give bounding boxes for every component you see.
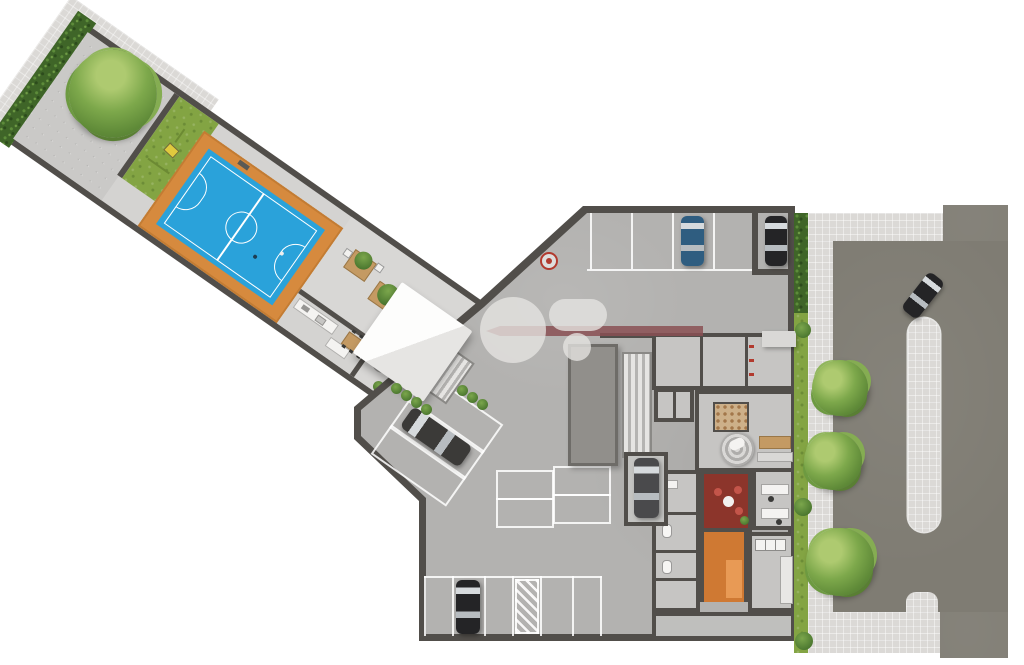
parking-divider xyxy=(484,576,486,636)
mail-room-floor xyxy=(713,402,749,432)
street-tree xyxy=(806,528,874,596)
office-room xyxy=(752,468,795,530)
parked-car-black xyxy=(765,216,787,266)
elevator-bank xyxy=(654,388,694,422)
parking-divider xyxy=(713,213,715,269)
street-bush xyxy=(794,498,812,516)
parking-divider xyxy=(540,576,542,636)
parking-divider xyxy=(590,213,592,269)
lounge-chair xyxy=(735,507,743,515)
ramp-slab xyxy=(568,344,618,466)
stairwell xyxy=(622,352,652,458)
office-chair xyxy=(768,496,774,502)
stair-shrub xyxy=(467,392,478,403)
floor-marker-dot xyxy=(546,258,552,264)
elevator-divider xyxy=(673,392,676,418)
stair-shrub xyxy=(401,390,412,401)
no-parking-hatch xyxy=(515,579,539,634)
parking-divider xyxy=(631,213,633,269)
stair-shrub xyxy=(411,397,422,408)
street-bush xyxy=(795,322,811,338)
lounge-room xyxy=(700,470,752,532)
driveway-top-right xyxy=(943,205,1008,241)
reception-desk xyxy=(759,436,791,449)
room-partition xyxy=(700,337,703,386)
alcove-wall-left xyxy=(752,213,758,275)
lounge-chair xyxy=(714,488,722,496)
room-partition xyxy=(745,337,748,386)
middle-spot xyxy=(496,498,554,528)
street-tree xyxy=(804,432,862,490)
parked-car-bottom xyxy=(456,580,480,634)
parking-divider xyxy=(424,576,426,636)
sidewalk-top xyxy=(808,213,943,241)
middle-spot xyxy=(553,466,611,496)
lobby-sculpture xyxy=(728,436,747,452)
stair-shrub xyxy=(457,385,468,396)
office-chair xyxy=(776,519,782,525)
lounge-plant xyxy=(740,516,749,525)
cooktop xyxy=(301,304,310,313)
driveway-bottom-right xyxy=(940,612,1008,658)
parking-divider xyxy=(572,576,574,636)
office-desk xyxy=(761,484,789,495)
stair-shrub xyxy=(421,404,432,415)
entry-canopy-roof xyxy=(762,331,796,347)
median-island xyxy=(908,318,940,532)
shaft-marker-red xyxy=(749,373,754,376)
middle-spot xyxy=(496,470,554,500)
office-desk xyxy=(761,508,789,519)
parked-car-blue xyxy=(681,216,704,266)
shaft-marker-red xyxy=(749,359,754,362)
laundry-room xyxy=(748,532,795,612)
stool-row xyxy=(757,452,793,462)
parked-car-boxed xyxy=(634,458,659,518)
hedge-strip xyxy=(794,213,808,313)
parking-divider xyxy=(512,576,514,636)
middle-spot xyxy=(553,494,611,524)
stair-shrub xyxy=(391,383,402,394)
alcove-wall-bottom xyxy=(752,269,795,275)
bottom-strip-room xyxy=(652,612,795,640)
washing-machine xyxy=(775,539,786,551)
stair-shrub xyxy=(477,399,488,410)
core-top-wall xyxy=(600,333,654,338)
orange-corridor xyxy=(700,532,748,602)
parking-row-line xyxy=(587,269,757,271)
room-partition xyxy=(656,550,696,553)
laundry-counter xyxy=(780,556,793,604)
street-bush xyxy=(795,632,813,650)
street-tree xyxy=(812,360,868,416)
lobby-block xyxy=(695,390,795,472)
room-partition xyxy=(656,578,696,581)
round-lobby-rug xyxy=(720,432,754,466)
site-plan-stage xyxy=(0,0,1024,665)
parking-divider xyxy=(452,576,454,636)
parking-divider xyxy=(672,213,674,269)
lounge-chair xyxy=(734,486,742,494)
sink xyxy=(314,315,326,326)
toilet xyxy=(662,560,672,574)
floor-marker-target xyxy=(540,252,558,270)
corridor-panel xyxy=(726,560,742,598)
toilet xyxy=(662,524,672,538)
lounge-table xyxy=(723,496,734,507)
parking-divider xyxy=(600,576,602,636)
grass-strip xyxy=(794,313,808,653)
median-stub xyxy=(906,592,938,612)
shaft-marker-red xyxy=(749,345,754,348)
